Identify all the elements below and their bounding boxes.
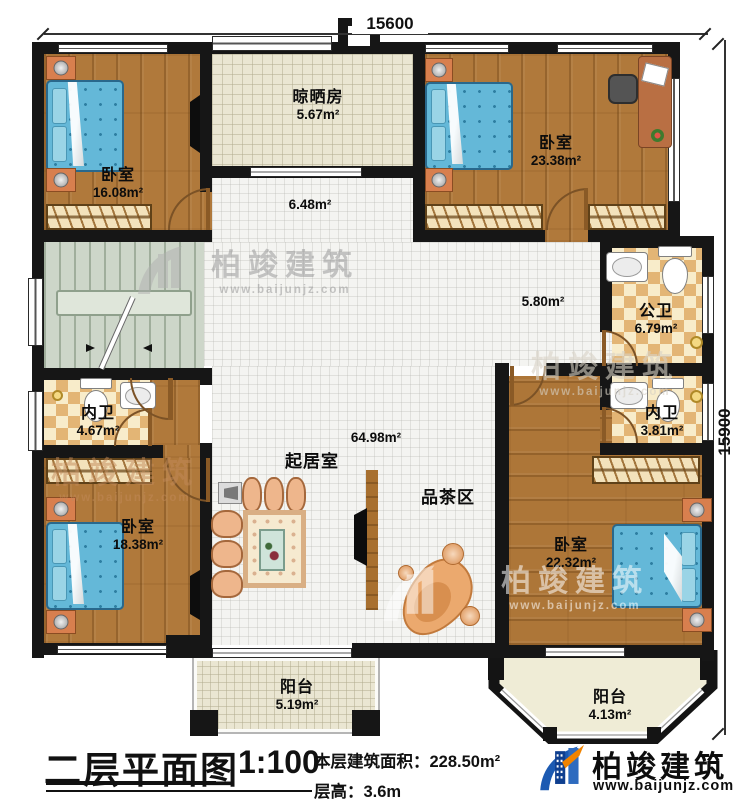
- room-label-ensuite-left: 内卫 4.67m²: [52, 404, 144, 439]
- floor-drain: [52, 390, 63, 401]
- wardrobe: [588, 204, 666, 230]
- bed-sheet: [664, 526, 682, 602]
- room-name: 公卫: [610, 302, 702, 321]
- wardrobe: [592, 456, 700, 484]
- room-name: 品茶区: [404, 488, 492, 508]
- teacup: [460, 606, 480, 626]
- room-name: 内卫: [52, 404, 144, 423]
- room-area: 23.38m²: [504, 153, 608, 169]
- room-label-bedroom-tl: 卧室 16.08m²: [68, 166, 168, 201]
- pillow: [52, 529, 67, 564]
- nightstand: [425, 58, 453, 82]
- sofa-seat: [286, 477, 306, 512]
- room-label-bedroom-tr: 卧室 23.38m²: [504, 134, 608, 169]
- sofa-seat: [211, 510, 243, 538]
- towel-ring: [690, 390, 703, 403]
- bed: [612, 524, 702, 608]
- bed: [46, 80, 124, 172]
- corner-tv-cabinet: [218, 482, 242, 504]
- room-name: 阳台: [250, 678, 344, 697]
- room-label-public-bath: 公卫 6.79m²: [610, 302, 702, 337]
- plan-area-total: 本层建筑面积：228.50m²: [314, 748, 500, 772]
- room-name: 卧室: [68, 166, 168, 185]
- pillow: [52, 566, 67, 601]
- room-area: 4.67m²: [52, 423, 144, 439]
- room-area: 64.98m²: [336, 430, 416, 446]
- tv: [354, 508, 367, 566]
- tv-partition-wall: [366, 470, 378, 610]
- wall: [32, 230, 212, 242]
- window: [57, 645, 167, 654]
- plan-title: 二层平面图: [44, 740, 239, 794]
- door-leaf: [510, 366, 514, 406]
- room-name: 卧室: [522, 536, 620, 555]
- wall: [588, 230, 680, 242]
- title-underline: [46, 781, 216, 785]
- toilet: [658, 246, 692, 294]
- sofa-seat: [211, 540, 243, 568]
- window: [58, 44, 168, 53]
- room-area: 5.80m²: [503, 294, 583, 310]
- bed-sheet: [66, 524, 84, 604]
- wall: [32, 445, 163, 458]
- wall: [32, 42, 44, 658]
- nightstand: [682, 608, 712, 632]
- tea-table-inner: [406, 575, 458, 629]
- nightstand: [46, 497, 76, 521]
- desk-plant: [651, 129, 664, 142]
- tv: [190, 95, 200, 153]
- wardrobe: [425, 204, 543, 230]
- room-name: 卧室: [90, 518, 186, 537]
- teacup: [442, 543, 464, 565]
- wall: [546, 363, 600, 376]
- coffee-tray: [259, 529, 285, 571]
- window: [557, 44, 653, 53]
- room-name: 晾晒房: [266, 88, 370, 107]
- pillow: [52, 126, 67, 162]
- sink: [606, 252, 648, 282]
- bed: [425, 82, 513, 170]
- wall: [200, 368, 212, 385]
- window: [28, 391, 43, 451]
- room-label-bedroom-bl: 卧室 18.38m²: [90, 518, 186, 553]
- room-area: 22.32m²: [522, 555, 620, 571]
- room-name: 阳台: [562, 688, 658, 707]
- sofa-seat: [264, 477, 284, 512]
- company-logo-icon: [534, 736, 584, 796]
- nightstand: [46, 610, 76, 634]
- wall: [352, 643, 497, 658]
- room-area: 5.19m²: [250, 697, 344, 713]
- room-area: 18.38m²: [90, 537, 186, 553]
- teacup: [398, 565, 414, 581]
- floor-plan: 卧室 16.08m² 晾晒房 5.67m² 卧室 23.38m² 6.48m² …: [0, 0, 750, 805]
- room-label-bedroom-br: 卧室 22.32m²: [522, 536, 620, 571]
- company-logo-url: www.baijunjz.com: [593, 778, 734, 794]
- pillow: [431, 126, 446, 161]
- window: [702, 276, 714, 334]
- stair-arrow: [143, 344, 152, 352]
- pillow: [681, 532, 696, 566]
- wardrobe: [46, 458, 152, 484]
- sofa-seat: [242, 477, 262, 512]
- window: [425, 44, 509, 53]
- dimension-label-top: 15600: [352, 14, 428, 34]
- sliding-door: [212, 648, 352, 658]
- area-label-living: 64.98m²: [336, 430, 416, 446]
- room-label-tea-area: 品茶区: [404, 488, 492, 508]
- room-area: 6.79m²: [610, 321, 702, 337]
- area-label-hall-upper: 6.48m²: [270, 197, 350, 213]
- rug: [243, 510, 306, 588]
- room-label-ensuite-right: 内卫 3.81m²: [618, 404, 706, 439]
- bed-sheet: [66, 82, 84, 166]
- bed-sheet: [445, 84, 463, 164]
- wall: [600, 443, 714, 455]
- wall: [495, 363, 509, 658]
- area-label-hall-mid: 5.80m²: [503, 294, 583, 310]
- room-area: 3.81m²: [618, 423, 706, 439]
- wall: [200, 443, 212, 456]
- room-label-living: 起居室: [268, 452, 356, 472]
- room-area: 4.13m²: [562, 707, 658, 723]
- door-leaf: [584, 188, 588, 230]
- balcony-pillar: [190, 710, 218, 736]
- nightstand: [425, 168, 453, 192]
- sofa-back-row: [242, 477, 306, 512]
- door-leaf: [168, 378, 173, 420]
- wardrobe: [46, 204, 152, 230]
- door-leaf: [206, 458, 210, 502]
- wall: [413, 230, 545, 242]
- room-name: 卧室: [504, 134, 608, 153]
- office-chair: [608, 74, 638, 104]
- laptop: [641, 62, 669, 86]
- sliding-door: [250, 167, 362, 177]
- dimension-tick: [712, 38, 725, 51]
- wall: [413, 42, 425, 242]
- room-label-balcony-mid: 阳台 5.19m²: [250, 678, 344, 713]
- tv: [190, 570, 200, 620]
- nightstand: [682, 498, 712, 522]
- room-name: 内卫: [618, 404, 706, 423]
- dimension-line-right: [724, 40, 726, 735]
- pillow: [431, 89, 446, 124]
- room-area: 6.48m²: [270, 197, 350, 213]
- nightstand: [46, 56, 76, 80]
- speaker-icon: [224, 486, 238, 500]
- room-label-balcony-br: 阳台 4.13m²: [562, 688, 658, 723]
- room-area: 5.67m²: [266, 107, 370, 123]
- door-leaf: [602, 330, 606, 366]
- window: [28, 278, 43, 346]
- door-leaf: [602, 407, 606, 443]
- room-label-drying: 晾晒房 5.67m²: [266, 88, 370, 123]
- wall: [166, 635, 212, 658]
- dimension-label-right: 15900: [715, 397, 735, 467]
- plan-scale: 1:100: [238, 744, 320, 781]
- door-leaf: [206, 188, 210, 230]
- desk: [638, 56, 672, 148]
- sliding-door: [545, 647, 625, 657]
- room-area: 16.08m²: [68, 185, 168, 201]
- door-threshold: [545, 230, 588, 242]
- towel-ring: [690, 336, 703, 349]
- stair-arrow: [86, 344, 95, 352]
- plan-floor-height: 层高：3.6m: [314, 778, 401, 802]
- sofa-left-row: [211, 510, 243, 598]
- wall: [32, 368, 212, 380]
- pillow: [52, 88, 67, 124]
- room-name: 起居室: [268, 452, 356, 472]
- balcony-pillar: [352, 710, 380, 736]
- sofa-seat: [211, 570, 243, 598]
- title-underline: [46, 790, 312, 792]
- pillow: [681, 568, 696, 602]
- window: [212, 36, 332, 51]
